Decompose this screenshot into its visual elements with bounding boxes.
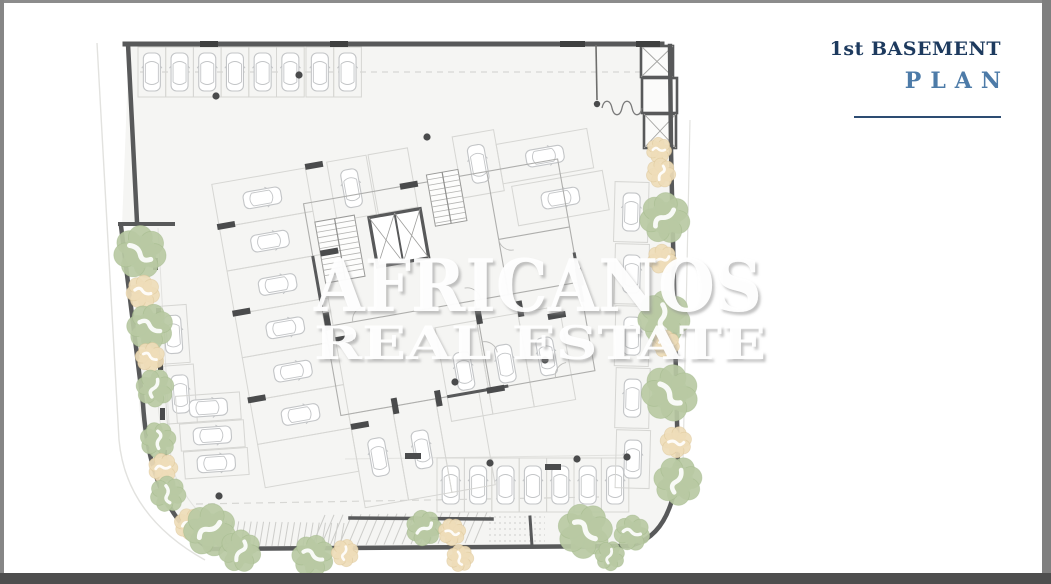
car bbox=[193, 424, 232, 447]
column-dot bbox=[541, 356, 548, 363]
column-dot bbox=[423, 133, 430, 140]
car bbox=[142, 53, 162, 91]
plan-title-line2: PLAN bbox=[830, 68, 1010, 94]
car bbox=[621, 255, 642, 294]
frame-border-bottom bbox=[0, 573, 1051, 584]
car bbox=[310, 53, 330, 91]
column-dot bbox=[623, 453, 630, 460]
column-dot bbox=[295, 71, 302, 78]
frame-border-right bbox=[1042, 0, 1051, 584]
wall-pier bbox=[405, 453, 421, 459]
car bbox=[523, 466, 543, 504]
car bbox=[253, 53, 273, 91]
car bbox=[197, 452, 236, 475]
column-dot bbox=[215, 492, 222, 499]
screenshot-frame: AFRICANOS REAL ESTATE 1st BASEMENT PLAN bbox=[0, 0, 1051, 584]
title-underline bbox=[854, 116, 1001, 118]
car bbox=[337, 53, 357, 91]
car bbox=[578, 466, 598, 504]
frame-border-left bbox=[0, 0, 4, 584]
car bbox=[169, 53, 189, 91]
car bbox=[468, 466, 488, 504]
car bbox=[621, 193, 642, 232]
column-dot bbox=[212, 92, 219, 99]
car bbox=[197, 53, 217, 91]
plan-title-line1: 1st BASEMENT bbox=[830, 38, 1001, 60]
car bbox=[622, 379, 643, 418]
car bbox=[495, 466, 515, 504]
wall-pier bbox=[160, 408, 165, 420]
column-dot bbox=[486, 459, 493, 466]
frame-border-top bbox=[0, 0, 1051, 3]
car bbox=[189, 396, 228, 419]
column-dot bbox=[451, 378, 458, 385]
column-dot bbox=[573, 455, 580, 462]
car bbox=[550, 466, 570, 504]
title-block: 1st BASEMENT PLAN bbox=[830, 38, 1001, 118]
car bbox=[225, 53, 245, 91]
elevator-shafts bbox=[369, 209, 429, 267]
wall-pier bbox=[545, 464, 561, 470]
